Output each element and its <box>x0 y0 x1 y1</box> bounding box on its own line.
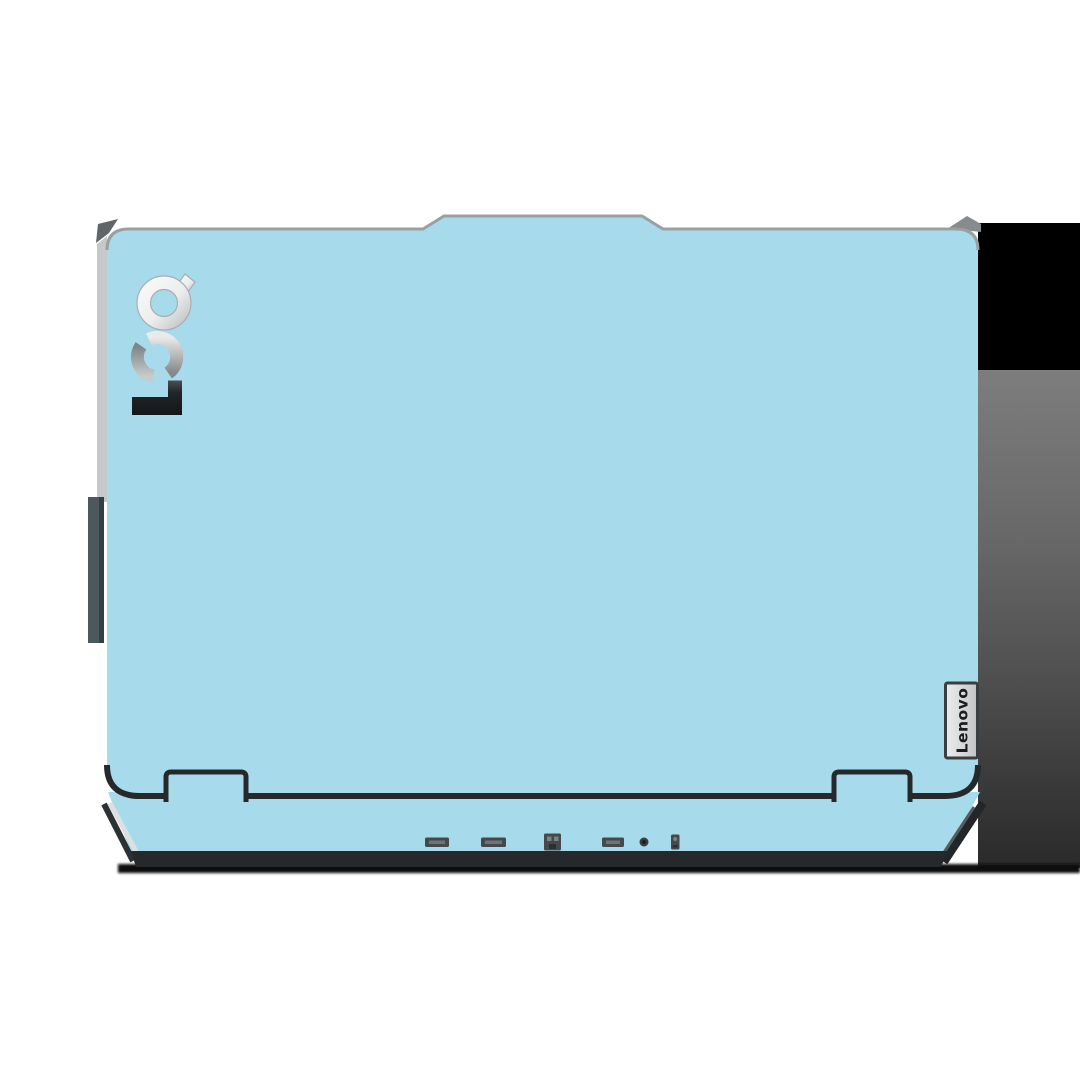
usb-a-port-icon-2 <box>602 838 624 848</box>
ethernet-port-icon <box>544 834 561 851</box>
lock-slot-icon <box>671 835 680 850</box>
hdmi-port-icon <box>481 838 506 848</box>
lid-surface <box>107 216 978 796</box>
laptop-lid: Lenovo <box>107 216 978 802</box>
lenovo-badge: Lenovo <box>946 683 978 758</box>
power-jack-icon <box>640 838 649 847</box>
hinge-bracket-left <box>166 772 246 802</box>
hinge-bracket-right <box>834 772 910 802</box>
product-photo-laptop-skin: Lenovo <box>0 0 1080 1080</box>
lenovo-badge-label: Lenovo <box>954 688 972 754</box>
base-edge-tab-left-shadow <box>99 497 104 643</box>
shadow-right-black-block <box>978 223 1080 371</box>
shadow-right-gray-column <box>978 370 1080 868</box>
laptop-rear-deck <box>104 792 983 867</box>
usb-a-port-icon <box>425 838 449 848</box>
laptop-illustration: Lenovo <box>0 0 1080 1080</box>
deck-bottom-edge-strip <box>131 851 948 867</box>
lid-side-edge-left <box>97 236 107 502</box>
